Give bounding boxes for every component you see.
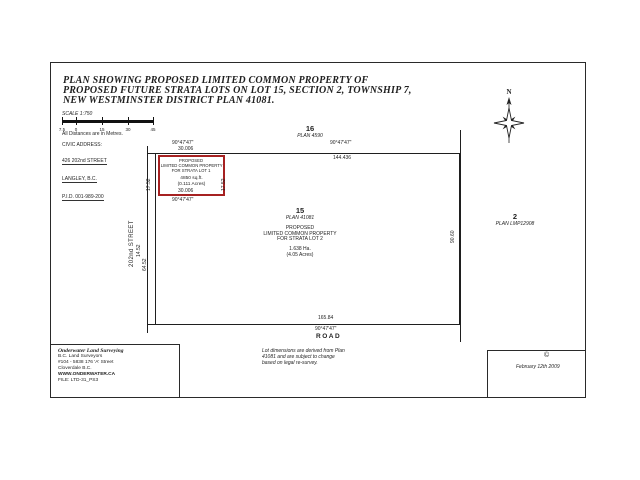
parcel-16-plan: PLAN 4590 [270, 133, 350, 139]
scale-label: SCALE 1:750 [62, 111, 92, 117]
dim-top-bearing: 90°47'47" [330, 141, 351, 146]
dim-box-bottom-distance: 30.006 [178, 189, 193, 194]
street-name-label: 202nd STREET [130, 220, 135, 267]
dim-box-right-side: 17.52 [222, 178, 227, 191]
scale-tick-label: 30 [125, 127, 130, 132]
civic-address-block: CIVIC ADDRESS: 426 202nd STREET LANGLEY,… [62, 143, 107, 203]
street-centerline [147, 146, 148, 333]
plan-date: February 12th 2009 [516, 364, 560, 370]
dim-street-upper: 14.52 [137, 244, 142, 257]
compass-rose-icon [492, 96, 526, 144]
lot-15-area-acres: (4.05 Acres) [230, 252, 370, 258]
surveyor-info-block: Onderwater Land Surveying B.C. Land Surv… [50, 344, 180, 397]
lot-15-text-line: FOR STRATA LOT 2 [230, 237, 370, 243]
dim-box-left-side: 17.52 [147, 178, 152, 191]
parcel-2-plan: PLAN LMP12908 [470, 221, 560, 227]
scale-tick [76, 117, 77, 125]
road-label: ROAD [316, 333, 341, 340]
parcel-2-number: 2 [470, 212, 560, 221]
parcel-2-label: 2 PLAN LMP12908 [470, 212, 560, 227]
parcel-16-number: 16 [270, 124, 350, 133]
boundary-segment [147, 324, 155, 325]
dim-box-bottom-bearing: 90°47'47" [172, 198, 193, 203]
civic-address-line: LANGLEY, B.C. [62, 177, 97, 184]
dimension-disclaimer-note: Lot dimensions are derived from Plan 410… [262, 348, 345, 366]
dim-east-side: 90.60 [451, 230, 456, 243]
boundary-segment [147, 153, 155, 154]
north-label: N [492, 88, 526, 96]
lot-15-number: 15 [230, 206, 370, 215]
lot-15-label-block: 15 PLAN 41081 PROPOSED LIMITED COMMON PR… [230, 206, 370, 258]
plan-title-line-3: NEW WESTMINSTER DISTRICT PLAN 41081. [63, 96, 443, 106]
scale-tick-label: 45 [150, 127, 155, 132]
dim-street-lower: 64.52 [143, 258, 148, 271]
dim-bottom-bearing: 90°47'47" [315, 327, 336, 332]
distance-units-note: All Distances are in Metres. [62, 132, 123, 138]
east-boundary-line [460, 130, 461, 342]
dim-box-top-distance: 30.006 [178, 147, 193, 152]
copyright-icon: © [544, 352, 549, 359]
lcp1-text-line: FOR STRATA LOT 1 [172, 169, 211, 173]
parcel-16-label: 16 PLAN 4590 [270, 124, 350, 139]
dim-top-distance: 144.436 [333, 156, 351, 161]
civic-address-line: 426 202nd STREET [62, 159, 107, 166]
plan-title: PLAN SHOWING PROPOSED LIMITED COMMON PRO… [63, 76, 443, 106]
lcp1-area-acres: (0.111 Acres) [178, 182, 206, 187]
civic-address-heading: CIVIC ADDRESS: [62, 143, 107, 149]
scale-bar: 7.5 0 15 30 45 [62, 120, 154, 123]
scale-tick [128, 117, 129, 125]
survey-plan-page: PLAN SHOWING PROPOSED LIMITED COMMON PRO… [0, 0, 640, 480]
civic-address-line: P.I.D. 001-989-200 [62, 195, 104, 202]
note-line: based on legal re-survey. [262, 360, 345, 366]
scale-tick [153, 117, 154, 125]
lot-15-plan: PLAN 41081 [230, 215, 370, 221]
north-arrow: N [492, 88, 526, 149]
dim-bottom-distance: 165.84 [318, 316, 333, 321]
date-block-border [487, 350, 586, 398]
scale-tick [102, 117, 103, 125]
scale-tick [62, 117, 63, 125]
surveyor-file-number: FILE: LTD-31_PS3 [58, 378, 179, 384]
